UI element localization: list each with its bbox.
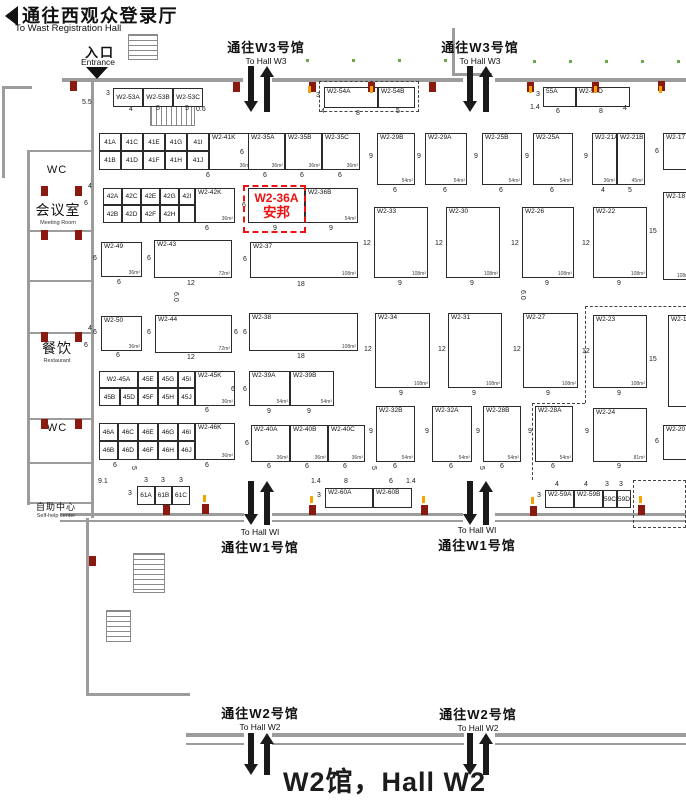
booth-45G: 45G: [158, 371, 178, 388]
door-marker: [70, 81, 77, 91]
room-label-en: Restaurant: [42, 358, 72, 364]
dimension-label: 18: [297, 353, 305, 360]
wall-segment: [2, 86, 5, 178]
passage-label-en: To Hall WI: [438, 525, 516, 535]
booth-W2-31: W2-31108m²: [448, 313, 502, 388]
booth-W2-46K: W2-46K36m²: [195, 423, 235, 460]
door-tick: [203, 495, 206, 502]
arrow-down-icon: [463, 66, 477, 112]
door-tick: [370, 86, 373, 93]
dashed-boundary: [532, 403, 585, 404]
booth-45B: 45B: [99, 388, 120, 406]
booth-label: W2-20: [666, 426, 685, 433]
arrow-down-icon: [244, 481, 258, 525]
booth-area: 108m²: [677, 273, 686, 279]
booth-46D: 46D: [118, 441, 138, 460]
door-tick: [639, 496, 642, 503]
dimension-label: 6: [338, 172, 342, 179]
dimension-label: 3: [161, 477, 165, 484]
booth-area: 36m²: [352, 455, 363, 461]
wall-segment: [60, 513, 244, 516]
dimension-label: 6: [655, 148, 659, 155]
booth-W2-26: W2-26108m²: [522, 207, 574, 278]
dimension-label: 6: [84, 342, 88, 349]
room-label-cn: 自助中心: [36, 500, 76, 513]
booth-W2-17: W2-17: [663, 133, 686, 170]
booth-W2-59B: W2-59B: [574, 490, 603, 508]
passage-label-cn: 通往W1号馆: [221, 537, 299, 556]
arrow-down-icon: [244, 66, 258, 112]
dimension-label: 6: [116, 352, 120, 359]
door-marker: [75, 230, 82, 240]
booth-label: W2-28A: [538, 407, 561, 414]
grid-dot: [641, 60, 644, 63]
booth-label: W2-25B: [485, 134, 508, 141]
dimension-label: 6: [655, 438, 659, 445]
room-label: 会议室Meeting Room: [36, 200, 81, 226]
wall-segment: [495, 743, 686, 745]
booth-area: 36m²: [277, 455, 288, 461]
dimension-label: 6: [113, 462, 117, 469]
room-label: WC: [47, 164, 67, 176]
booth-W2-53A: W2-53A: [113, 88, 143, 107]
booth-label: W2-49: [104, 243, 123, 250]
dimension-label: 9: [472, 390, 476, 397]
passage-label: 通往W3号馆To Hall W3: [227, 37, 305, 66]
booth-label: W2-37: [253, 243, 272, 250]
booth-46H: 46H: [158, 441, 178, 460]
booth-61C: 61C: [172, 486, 190, 505]
booth-area: 36m²: [309, 163, 320, 169]
booth-W2-21A: W2-21A36m²: [592, 133, 617, 185]
stairs: [106, 610, 131, 642]
dimension-label: 3: [605, 481, 609, 488]
dimension-label: 9: [584, 153, 588, 160]
booth-W2-39B: W2-39B54m²: [290, 371, 334, 406]
booth-W2-28B: W2-28B54m²: [483, 406, 521, 462]
dimension-label: 6: [93, 329, 97, 336]
booth-W2-39A: W2-39A54m²: [249, 371, 290, 406]
dimension-label: 5: [185, 105, 189, 112]
dimension-label: 6.0: [172, 292, 179, 302]
passage-label: 通往W3号馆To Hall W3: [441, 37, 519, 66]
passage-label-cn: 通往W1号馆: [438, 535, 516, 554]
booth-label: W2-44: [158, 316, 177, 323]
booth-W2-45A: W2-45A: [99, 371, 138, 388]
dashed-boundary: [585, 306, 686, 307]
passage-label: 通往W2号馆To Hall W2: [221, 703, 299, 732]
booth-W2-42K: W2-42K36m²: [195, 188, 235, 223]
booth-area: 36m²: [222, 453, 233, 459]
hall-title: W2馆，Hall W2: [283, 760, 486, 799]
door-marker: [163, 505, 170, 515]
grid-dot: [677, 60, 680, 63]
booth-45I: 45I: [178, 371, 195, 388]
arrow-up-icon: [260, 66, 274, 112]
dimension-label: 4: [88, 183, 92, 190]
booth-label: W2-21B: [620, 134, 643, 141]
dimension-label: 6: [550, 187, 554, 194]
dimension-label: 6: [93, 255, 97, 262]
door-marker: [233, 82, 240, 92]
dimension-label: 8: [599, 108, 603, 115]
dimension-label: 9: [474, 153, 478, 160]
dashed-boundary: [532, 403, 533, 480]
booth-area: 54m²: [321, 399, 332, 405]
booth-W2-25A: W2-25A54m²: [533, 133, 573, 185]
dimension-label: 15: [649, 356, 657, 363]
passage-label-en: To Hall W2: [221, 722, 299, 732]
booth-area: 36m²: [347, 163, 358, 169]
booth-label: W2-39A: [252, 372, 275, 379]
dimension-label: 4: [601, 187, 605, 194]
wall-segment: [272, 513, 463, 516]
dimension-label: 1.4: [406, 478, 416, 485]
dimension-label: 8: [344, 478, 348, 485]
booth-W2-38: W2-38108m²: [249, 313, 358, 351]
arrow-up-icon: [260, 481, 274, 525]
grid-dot: [533, 60, 536, 63]
dimension-label: 6: [243, 256, 247, 263]
booth-61B: 61B: [155, 486, 172, 505]
booth-area: 54m²: [560, 178, 571, 184]
booth-W2-45K: W2-45K36m²: [195, 371, 235, 406]
booth-area: 54m²: [454, 178, 465, 184]
dimension-label: 5: [478, 466, 485, 470]
booth-label: W2-17: [666, 134, 685, 141]
dimension-label: 6: [551, 463, 555, 470]
booth-59C: 59C: [603, 490, 617, 508]
booth-46J: 46J: [178, 441, 195, 460]
booth-area: 108m²: [631, 381, 645, 387]
dimension-label: 6: [205, 225, 209, 232]
booth-41F: 41F: [143, 151, 165, 170]
dimension-label: 5: [130, 466, 137, 470]
booth-area: 36m²: [272, 163, 283, 169]
booth-42F: 42F: [141, 205, 160, 223]
door-marker: [429, 82, 436, 92]
arrow-up-icon: [260, 733, 274, 775]
door-marker: [41, 332, 48, 342]
arrow-down-icon: [463, 733, 477, 775]
booth-41J: 41J: [187, 151, 209, 170]
wall-segment: [186, 733, 244, 737]
booth-W2-25B: W2-25B54m²: [482, 133, 522, 185]
booth-41E: 41E: [143, 133, 165, 151]
booth-area: 108m²: [558, 271, 572, 277]
dimension-label: 3: [317, 492, 321, 499]
booth-41B: 41B: [99, 151, 121, 170]
booth-55A: 55A: [543, 87, 576, 107]
dimension-label: 15: [649, 228, 657, 235]
door-tick: [659, 86, 662, 93]
dimension-label: 4: [88, 325, 92, 332]
booth-W2-37: W2-37108m²: [250, 242, 358, 278]
booth-area: 108m²: [342, 271, 356, 277]
booth-46F: 46F: [138, 441, 158, 460]
dimension-label: 9: [525, 153, 529, 160]
door-marker: [309, 505, 316, 515]
door-marker: [638, 505, 645, 515]
booth-area: 36m²: [129, 344, 140, 350]
wall-segment: [91, 80, 94, 518]
door-marker: [41, 186, 48, 196]
dimension-label: 6: [206, 172, 210, 179]
booth-area: 36m²: [222, 399, 233, 405]
booth-45E: 45E: [138, 371, 158, 388]
dimension-label: 6: [300, 172, 304, 179]
booth-area: 54m²: [459, 455, 470, 461]
dimension-label: 9: [545, 280, 549, 287]
dimension-label: 5: [156, 105, 160, 112]
dimension-label: 9: [398, 280, 402, 287]
dimension-label: 9: [470, 280, 474, 287]
booth-W2-33: W2-33108m²: [374, 207, 428, 278]
wall-segment: [272, 520, 463, 522]
dimension-label: 6: [147, 255, 151, 262]
door-tick: [310, 496, 313, 503]
door-marker: [421, 505, 428, 515]
dimension-label: 12: [435, 240, 443, 247]
booth-42I: 42I: [179, 188, 195, 205]
booth-W2-40C: W2-40C36m²: [328, 425, 365, 462]
booth-area: 108m²: [342, 344, 356, 350]
booth-label: W2-45K: [198, 372, 221, 379]
passage-label-cn: 通往W2号馆: [221, 703, 299, 722]
booth-45D: 45D: [120, 388, 138, 406]
dimension-label: 3: [536, 91, 540, 98]
booth-W2-59A: W2-59A: [545, 490, 574, 508]
door-marker: [202, 504, 209, 514]
door-marker: [75, 332, 82, 342]
booth-area: 36m²: [129, 270, 140, 276]
dimension-label: 9: [425, 428, 429, 435]
booth-46A: 46A: [99, 423, 118, 441]
booth-area: 108m²: [562, 381, 576, 387]
dimension-label: 12: [513, 346, 521, 353]
booth-label: W2-19: [671, 316, 686, 323]
booth-label: W2-39B: [293, 372, 316, 379]
door-tick: [308, 86, 311, 93]
passage-label-cn: 通往W3号馆: [227, 37, 305, 56]
booth-W2-49: W2-4936m²: [101, 242, 142, 277]
dimension-label: 3: [179, 477, 183, 484]
booth-label: W2-25A: [536, 134, 559, 141]
arrow-up-icon: [479, 733, 493, 775]
booth-W2-60A: W2-60A: [325, 488, 373, 508]
booth-42H: 42H: [160, 205, 179, 223]
dimension-label: 6: [234, 329, 238, 336]
booth-41D: 41D: [121, 151, 143, 170]
booth-area: 36m²: [222, 216, 233, 222]
booth-label: W2-36B: [308, 189, 331, 196]
room-label-cn: 会议室: [36, 200, 81, 220]
booth-area: 54m²: [402, 455, 413, 461]
booth-label: W2-26: [525, 208, 544, 215]
booth-W2-40A: W2-40A36m²: [251, 425, 290, 462]
booth-label: W2-27: [526, 314, 545, 321]
passage-label: 通往W2号馆To Hall W2: [439, 704, 517, 733]
booth-label: W2-21A: [595, 134, 618, 141]
passage-label-en: To Hall W2: [439, 723, 517, 733]
booth-label: W2-35B: [288, 134, 311, 141]
booth-W2-35C: W2-35C36m²: [322, 133, 360, 170]
dimension-label: 6: [393, 463, 397, 470]
dimension-label: 12: [187, 280, 195, 287]
dimension-label: 6: [231, 386, 235, 393]
booth-41G: 41G: [165, 133, 187, 151]
booth-42G: 42G: [160, 188, 179, 205]
wall-segment: [272, 733, 464, 737]
booth-label: W2-60A: [328, 489, 351, 496]
arrow-up-icon: [479, 66, 493, 112]
wall-segment: [86, 693, 190, 696]
booth-46E: 46E: [138, 423, 158, 441]
booth-W2-40B: W2-40B36m²: [290, 425, 328, 462]
door-marker: [75, 186, 82, 196]
booth-label: W2-29A: [428, 134, 451, 141]
dimension-label: 9: [369, 153, 373, 160]
booth-area: 54m²: [277, 399, 288, 405]
booth-label: W2-23: [596, 316, 615, 323]
door-marker: [75, 419, 82, 429]
booth-42A: 42A: [103, 188, 122, 205]
booth-label: W2-30: [449, 208, 468, 215]
door-marker: [41, 230, 48, 240]
door-tick: [594, 86, 597, 93]
dimension-label: 6: [305, 463, 309, 470]
dimension-label: 12: [511, 240, 519, 247]
door-tick: [531, 497, 534, 504]
door-tick: [529, 86, 532, 93]
booth-41A: 41A: [99, 133, 121, 151]
passage-label: To Hall WI通往W1号馆: [438, 525, 516, 554]
entrance-label-en: Entrance: [81, 57, 115, 67]
booth-area: 54m²: [508, 455, 519, 461]
booth-42C: 42C: [122, 188, 141, 205]
dimension-label: 12: [187, 354, 195, 361]
passage-label: To Hall WI通往W1号馆: [221, 527, 299, 556]
dimension-label: 5.5: [82, 99, 92, 106]
wall-segment: [27, 150, 30, 505]
booth-label: W2-34: [378, 314, 397, 321]
room-label: WC: [47, 422, 67, 434]
booth-W2-23: W2-23108m²: [593, 315, 647, 388]
wall-segment: [272, 743, 464, 745]
wall-segment: [27, 462, 91, 464]
arrow-down-icon: [463, 481, 477, 525]
grid-dot: [398, 59, 401, 62]
booth-45J: 45J: [178, 388, 195, 406]
door-tick: [422, 496, 425, 503]
dimension-label: 6: [117, 279, 121, 286]
wall-segment: [495, 733, 686, 737]
passage-label-cn: 通往W2号馆: [439, 704, 517, 723]
booth-W2-44: W2-4472m²: [155, 315, 232, 353]
booth-area: 45m²: [632, 178, 643, 184]
dimension-label: 9.1: [98, 478, 108, 485]
booth-W2-55D: W2-55D: [576, 87, 630, 107]
booth-area: 108m²: [486, 381, 500, 387]
booth-label: W2-42K: [198, 189, 221, 196]
passage-label-en: To Hall W3: [441, 56, 519, 66]
booth-42E: 42E: [141, 188, 160, 205]
dimension-label: 6: [205, 407, 209, 414]
booth-W2-50: W2-5036m²: [101, 316, 142, 351]
dimension-label: 6: [243, 329, 247, 336]
booth-area: 108m²: [631, 271, 645, 277]
dimension-label: 9: [369, 428, 373, 435]
booth-42D: 42D: [122, 205, 141, 223]
room-label-cn: WC: [47, 422, 67, 434]
booth-W2-34: W2-34108m²: [375, 313, 430, 388]
booth-W2-35A: W2-35A36m²: [248, 133, 285, 170]
room-label-en: Meeting Room: [36, 220, 81, 226]
floor-plan: 通往西观众登录厅 To Wast Registration Hall 入口 En…: [0, 0, 686, 801]
booth-41I: 41I: [187, 133, 209, 151]
booth-label: W2-32A: [435, 407, 458, 414]
booth-label: W2-40A: [254, 426, 277, 433]
booth-42B: 42B: [103, 205, 122, 223]
wall-segment: [27, 150, 91, 152]
dimension-label: 12: [438, 346, 446, 353]
dashed-boundary: [633, 480, 686, 528]
dimension-label: 9: [329, 225, 333, 232]
booth-59D: 59D: [617, 490, 631, 508]
wall-segment: [2, 86, 32, 89]
dimension-label: 6: [263, 172, 267, 179]
booth-W2-41K: W2-41K36m²: [209, 133, 253, 170]
booth-label: W2-46K: [198, 424, 221, 431]
dimension-label: 6: [205, 462, 209, 469]
dimension-label: 4: [623, 105, 627, 112]
booth-label: W2-59B: [577, 491, 600, 498]
booth-label: W2-60B: [376, 489, 399, 496]
booth-label: W2-55D: [579, 88, 603, 95]
grid-dot: [569, 60, 572, 63]
room-label-en: Self-help center: [36, 513, 76, 519]
dimension-label: 9: [307, 408, 311, 415]
booth-label: W2-43: [157, 241, 176, 248]
booth-area: 54m²: [560, 455, 571, 461]
booth-label: 55A: [546, 88, 558, 95]
booth-label: W2-35C: [325, 134, 349, 141]
room-label-cn: WC: [47, 164, 67, 176]
booth-area: 36m²: [315, 455, 326, 461]
dimension-label: 6: [84, 200, 88, 207]
booth-empty-cell: [179, 205, 195, 223]
booth-41C: 41C: [121, 133, 143, 151]
booth-label: W2-38: [252, 314, 271, 321]
dimension-label: 9: [399, 390, 403, 397]
passage-label-en: To Hall WI: [221, 527, 299, 537]
dimension-label: 9: [267, 408, 271, 415]
dimension-label: 18: [297, 281, 305, 288]
dimension-label: 5: [370, 466, 377, 470]
booth-W2-29A: W2-29A54m²: [425, 133, 467, 185]
booth-label: W2-28B: [486, 407, 509, 414]
grid-dot: [605, 60, 608, 63]
booth-area: 36m²: [604, 178, 615, 184]
dimension-label: 6: [556, 108, 560, 115]
booth-W2-22: W2-22108m²: [593, 207, 647, 278]
booth-label: W2-32B: [379, 407, 402, 414]
dimension-label: 6.0: [519, 290, 526, 300]
dimension-label: 6: [499, 187, 503, 194]
dimension-label: 3: [128, 490, 132, 497]
booth-label: W2-40B: [293, 426, 316, 433]
dimension-label: 6: [449, 463, 453, 470]
